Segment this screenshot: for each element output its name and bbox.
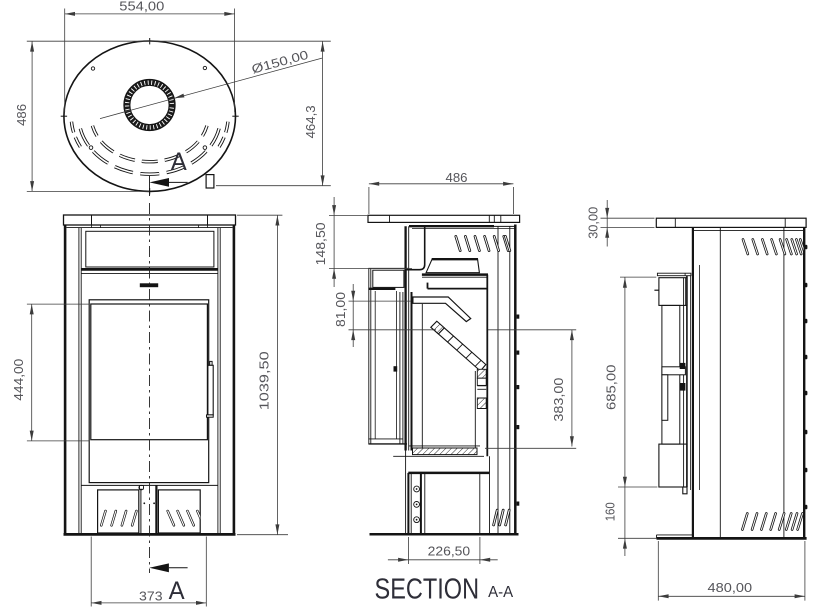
svg-text:373: 373: [139, 590, 163, 604]
svg-text:148,50: 148,50: [314, 222, 328, 265]
svg-text:30,00: 30,00: [587, 207, 601, 239]
svg-text:A: A: [169, 577, 185, 605]
svg-text:480,00: 480,00: [708, 581, 753, 595]
svg-text:1039,50: 1039,50: [257, 351, 271, 410]
svg-text:226,50: 226,50: [428, 544, 471, 558]
svg-text:Ø150,00: Ø150,00: [250, 48, 310, 77]
svg-text:464,3: 464,3: [304, 105, 318, 138]
svg-text:383,00: 383,00: [552, 378, 566, 422]
svg-text:A: A: [171, 148, 187, 176]
svg-text:SECTION: SECTION: [375, 573, 480, 605]
svg-text:554,00: 554,00: [119, 0, 164, 14]
svg-text:444,00: 444,00: [12, 359, 26, 401]
svg-text:81,00: 81,00: [334, 292, 348, 327]
svg-text:160: 160: [604, 502, 618, 521]
svg-text:486: 486: [15, 104, 29, 126]
svg-text:685,00: 685,00: [605, 364, 619, 410]
svg-text:A-A: A-A: [488, 584, 513, 601]
svg-text:486: 486: [446, 171, 468, 185]
